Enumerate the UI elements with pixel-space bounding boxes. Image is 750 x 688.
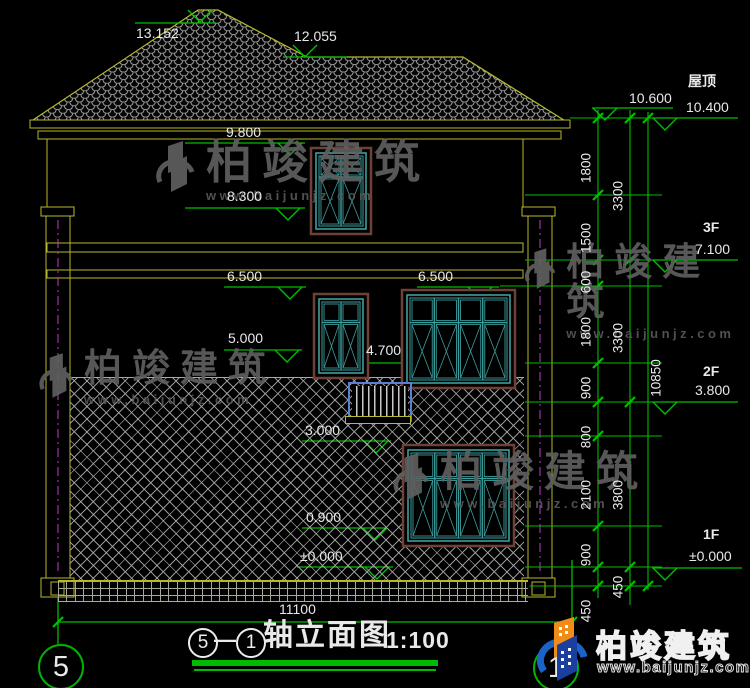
- elevation-drawing-canvas: 柏竣建筑 www.baijunjz.com 柏竣建筑 www.baijunjz.…: [0, 0, 750, 688]
- level-label: 3.000: [305, 423, 340, 437]
- footer-logo-icon: [532, 613, 592, 687]
- level-label: 5.000: [228, 331, 263, 345]
- title-underline-thin: [194, 669, 436, 671]
- dim-label: 1800: [579, 153, 593, 183]
- level-label: 13.152: [136, 26, 179, 40]
- dim-label: 3800: [611, 480, 625, 510]
- level-label: 4.700: [366, 343, 401, 357]
- title-axis-end: 1: [246, 632, 257, 654]
- floor-label: 屋顶: [688, 74, 716, 88]
- dim-label: 3300: [611, 323, 625, 353]
- level-label: 8.300: [227, 189, 262, 203]
- level-label: ±0.000: [689, 549, 732, 563]
- title-underline-thick: [192, 660, 438, 666]
- level-label: 12.055: [294, 29, 337, 43]
- level-label: 6.500: [227, 269, 262, 283]
- footer-logo-url: www.baijunjz.com: [597, 659, 750, 676]
- dim-label: 3300: [611, 181, 625, 211]
- level-label: 3.800: [695, 383, 730, 397]
- dim-label: 900: [579, 377, 593, 400]
- level-label: 6.500: [418, 269, 453, 283]
- dim-total-label: 10850: [649, 359, 663, 397]
- title-axis-start: 5: [198, 632, 209, 654]
- level-label: 10.600: [629, 91, 672, 105]
- overall-dim-label: 11100: [279, 602, 316, 616]
- drawing-title: 轴立面图: [263, 621, 391, 651]
- title-axis-separator: —: [214, 629, 236, 651]
- level-label: 0.900: [306, 510, 341, 524]
- dim-label: 1500: [579, 223, 593, 253]
- drawing-scale: 1:100: [386, 629, 450, 652]
- level-label: 10.400: [686, 100, 729, 114]
- dim-label: 800: [579, 426, 593, 449]
- dim-label: 450: [611, 576, 625, 599]
- railing-sill: [345, 416, 411, 424]
- dim-label: 1800: [579, 317, 593, 347]
- axis-bubble-5: 5: [38, 644, 84, 688]
- level-label: ±0.000: [300, 549, 343, 563]
- dim-label: 900: [579, 544, 593, 567]
- dim-label: 2100: [579, 480, 593, 510]
- floor-label: 3F: [703, 220, 719, 234]
- dim-label: 600: [579, 271, 593, 294]
- axis-bubble-5-label: 5: [53, 651, 69, 684]
- title-axis-end-bubble: 1: [236, 628, 266, 658]
- level-label: 9.800: [226, 125, 261, 139]
- level-label: 7.100: [695, 242, 730, 256]
- floor-label: 2F: [703, 364, 719, 378]
- floor-label: 1F: [703, 527, 719, 541]
